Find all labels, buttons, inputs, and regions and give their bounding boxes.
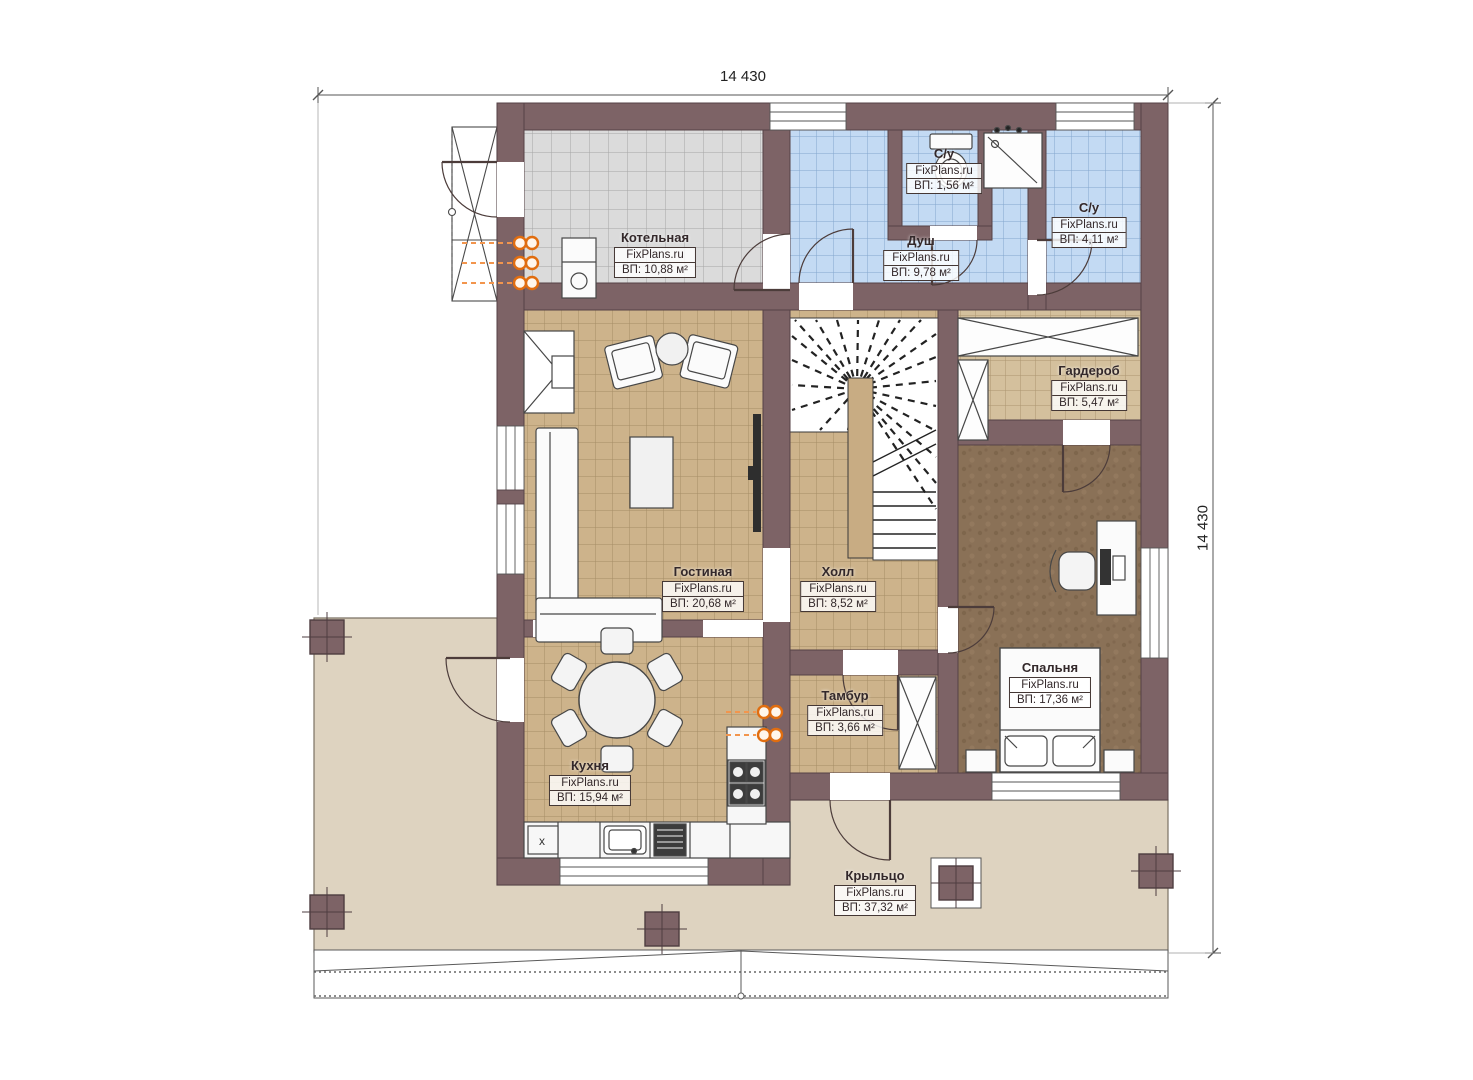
- stair-core: [848, 378, 873, 558]
- room-area: ВП: 10,88 м²: [615, 263, 695, 277]
- room-brand: FixPlans.ru: [615, 248, 695, 263]
- column: [1131, 846, 1181, 896]
- column: [931, 858, 981, 908]
- window-living-left: [497, 426, 524, 574]
- room-area: ВП: 3,66 м²: [808, 721, 882, 735]
- room-info-box: FixPlans.ru ВП: 3,66 м²: [807, 705, 883, 736]
- room-label-porch: Крыльцо FixPlans.ru ВП: 37,32 м²: [834, 868, 916, 916]
- room-info-box: FixPlans.ru ВП: 4,11 м²: [1052, 217, 1127, 248]
- room-brand: FixPlans.ru: [884, 251, 958, 266]
- room-name: Крыльцо: [845, 868, 904, 883]
- room-brand: FixPlans.ru: [1010, 678, 1090, 693]
- room-info-box: FixPlans.ru ВП: 10,88 м²: [614, 247, 696, 278]
- kitchen-counter-right: [727, 727, 766, 824]
- room-area: ВП: 15,94 м²: [550, 791, 630, 805]
- room-label-living: Гостиная FixPlans.ru ВП: 20,68 м²: [662, 564, 744, 612]
- tambour-closet: [899, 677, 936, 769]
- floor-plan-drawing: x: [0, 0, 1473, 1080]
- room-brand: FixPlans.ru: [1053, 218, 1126, 233]
- room-label-bedroom: Спальня FixPlans.ru ВП: 17,36 м²: [1009, 660, 1091, 708]
- column: [302, 887, 352, 937]
- room-name: Душ: [907, 233, 935, 248]
- room-name: С/у: [934, 146, 954, 161]
- exterior-stair: [449, 127, 498, 301]
- room-name: Тамбур: [821, 688, 868, 703]
- dimension-label-right: 14 430: [1195, 505, 1212, 551]
- entry-steps: [314, 950, 1168, 999]
- room-brand: FixPlans.ru: [550, 776, 630, 791]
- room-label-wardrobe: Гардероб FixPlans.ru ВП: 5,47 м²: [1051, 363, 1127, 411]
- boiler-unit: [562, 238, 596, 298]
- room-info-box: FixPlans.ru ВП: 8,52 м²: [800, 581, 876, 612]
- desk: [1097, 521, 1136, 615]
- room-name: Кухня: [571, 758, 609, 773]
- room-name: Гардероб: [1058, 363, 1119, 378]
- floor-plan: x 14 430 14 430 Котельная FixPlans.ru ВП…: [0, 0, 1473, 1080]
- room-name: Холл: [822, 564, 855, 579]
- room-area: ВП: 9,78 м²: [884, 266, 958, 280]
- room-brand: FixPlans.ru: [835, 886, 915, 901]
- room-label-kitchen: Кухня FixPlans.ru ВП: 15,94 м²: [549, 758, 631, 806]
- room-name: С/у: [1079, 200, 1099, 215]
- room-name: Гостиная: [674, 564, 733, 579]
- wardrobe-closet-top: [958, 318, 1138, 356]
- room-info-box: FixPlans.ru ВП: 17,36 м²: [1009, 677, 1091, 708]
- window-top-1: [770, 103, 846, 130]
- room-brand: FixPlans.ru: [663, 582, 743, 597]
- room-info-box: FixPlans.ru ВП: 15,94 м²: [549, 775, 631, 806]
- column: [637, 904, 687, 954]
- nightstand-left: [966, 750, 996, 772]
- room-label-wc-top: С/у FixPlans.ru ВП: 1,56 м²: [906, 146, 982, 194]
- room-info-box: FixPlans.ru ВП: 20,68 м²: [662, 581, 744, 612]
- room-label-shower: Душ FixPlans.ru ВП: 9,78 м²: [883, 233, 959, 281]
- coffee-table: [630, 437, 673, 508]
- room-label-wc-right: С/у FixPlans.ru ВП: 4,11 м²: [1052, 200, 1127, 248]
- nightstand-right: [1104, 750, 1134, 772]
- room-brand: FixPlans.ru: [801, 582, 875, 597]
- room-area: ВП: 8,52 м²: [801, 597, 875, 611]
- room-area: ВП: 37,32 м²: [835, 901, 915, 915]
- room-name: Спальня: [1022, 660, 1078, 675]
- cooktop: [728, 760, 765, 806]
- room-label-hall: Холл FixPlans.ru ВП: 8,52 м²: [800, 564, 876, 612]
- room-label-tambour: Тамбур FixPlans.ru ВП: 3,66 м²: [807, 688, 883, 736]
- room-brand: FixPlans.ru: [907, 164, 981, 179]
- room-info-box: FixPlans.ru ВП: 37,32 м²: [834, 885, 916, 916]
- kitchen-counter-bottom: [524, 822, 790, 858]
- fireplace: [524, 331, 574, 413]
- room-info-box: FixPlans.ru ВП: 1,56 м²: [906, 163, 982, 194]
- room-area: ВП: 20,68 м²: [663, 597, 743, 611]
- room-name: Котельная: [621, 230, 689, 245]
- side-table: [656, 333, 688, 365]
- room-info-box: FixPlans.ru ВП: 9,78 м²: [883, 250, 959, 281]
- dining-table: [579, 662, 655, 738]
- window-bedroom-right: [1141, 548, 1168, 658]
- room-area: ВП: 17,36 м²: [1010, 693, 1090, 707]
- kitchen-sink: [604, 826, 646, 854]
- room-info-box: FixPlans.ru ВП: 5,47 м²: [1051, 380, 1127, 411]
- window-bedroom-bottom: [992, 773, 1120, 800]
- shower-tray: [984, 126, 1042, 189]
- room-label-boiler: Котельная FixPlans.ru ВП: 10,88 м²: [614, 230, 696, 278]
- room-area: ВП: 1,56 м²: [907, 179, 981, 193]
- window-top-2: [1056, 103, 1134, 130]
- dishwasher: [654, 824, 686, 856]
- cabinet-x-mark: x: [539, 834, 545, 848]
- column: [302, 612, 352, 662]
- room-brand: FixPlans.ru: [1052, 381, 1126, 396]
- room-area: ВП: 4,11 м²: [1053, 233, 1126, 247]
- room-brand: FixPlans.ru: [808, 706, 882, 721]
- window-kitchen-bottom: [560, 858, 708, 885]
- dimension-label-top: 14 430: [720, 68, 766, 85]
- wardrobe-closet-left: [958, 360, 988, 440]
- room-area: ВП: 5,47 м²: [1052, 396, 1126, 410]
